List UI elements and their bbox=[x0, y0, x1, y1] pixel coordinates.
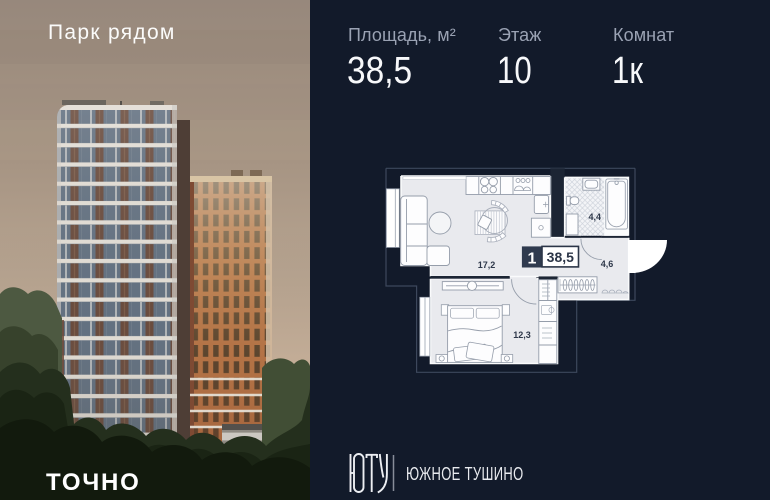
svg-text:17,2: 17,2 bbox=[478, 260, 496, 270]
svg-text:1: 1 bbox=[528, 251, 537, 268]
svg-text:38,5: 38,5 bbox=[547, 249, 574, 265]
svg-text:12,3: 12,3 bbox=[513, 330, 531, 340]
svg-text:4,4: 4,4 bbox=[588, 212, 601, 222]
svg-text:4,6: 4,6 bbox=[601, 259, 614, 269]
